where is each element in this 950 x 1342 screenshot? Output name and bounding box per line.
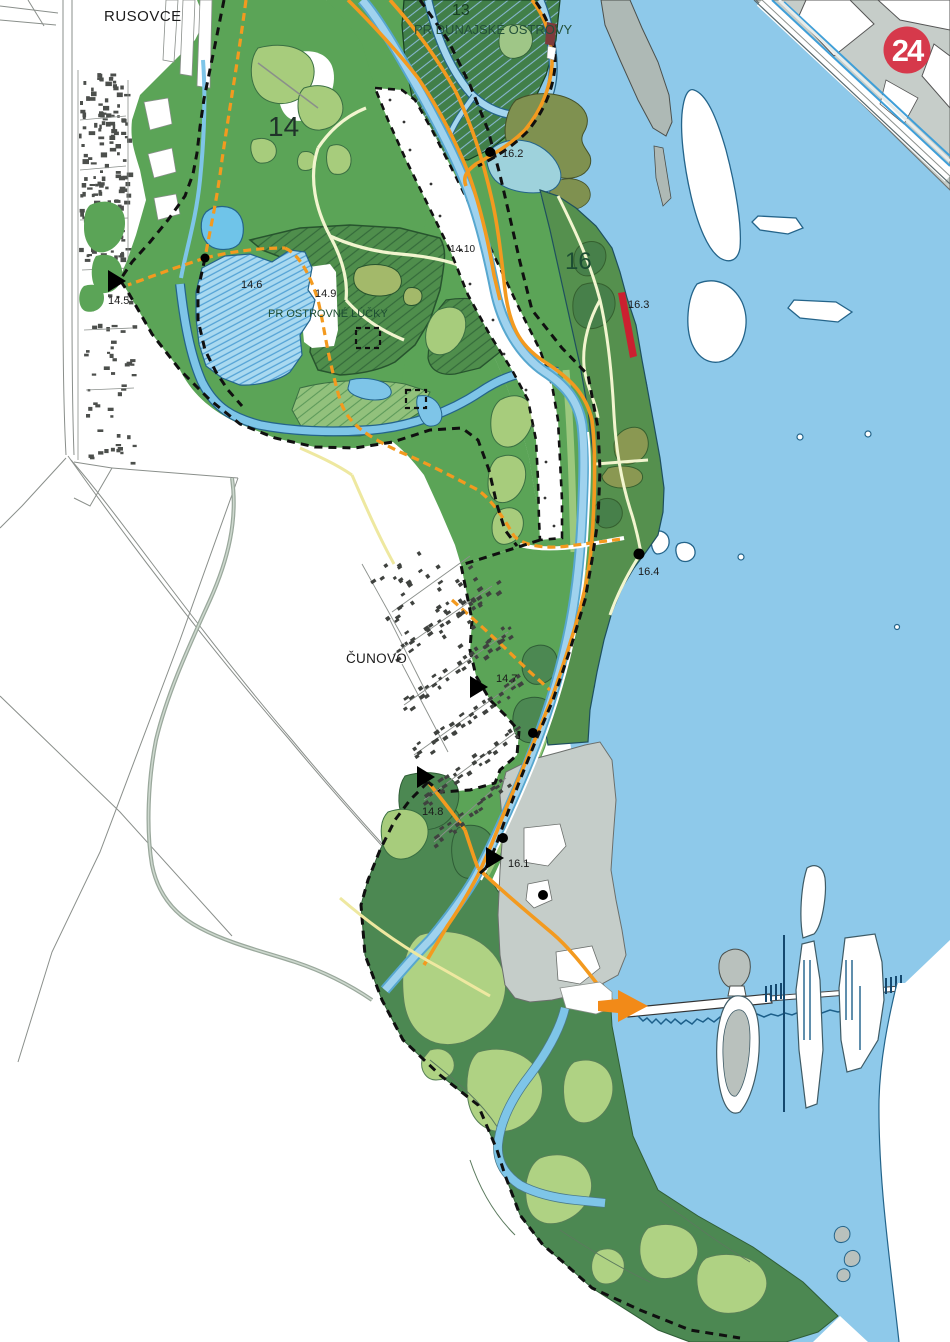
svg-text:16: 16 [565, 248, 592, 275]
svg-text:ČUNOVO: ČUNOVO [346, 651, 407, 666]
svg-text:14: 14 [268, 111, 299, 142]
svg-text:14.10: 14.10 [450, 244, 475, 255]
svg-text:16.3: 16.3 [628, 299, 649, 311]
svg-text:24: 24 [892, 33, 925, 68]
svg-text:PR OSTROVNÉ LÚČKY: PR OSTROVNÉ LÚČKY [268, 307, 388, 320]
svg-text:16.2: 16.2 [502, 148, 523, 160]
svg-text:16.4: 16.4 [638, 566, 659, 578]
svg-text:14.6: 14.6 [241, 279, 262, 291]
svg-text:16.1: 16.1 [508, 858, 529, 870]
svg-text:14.5: 14.5 [108, 295, 129, 307]
svg-text:14.8: 14.8 [422, 806, 443, 818]
svg-text:13: 13 [452, 2, 470, 19]
svg-text:RUSOVCE: RUSOVCE [104, 8, 182, 25]
svg-text:14.9: 14.9 [315, 288, 336, 300]
svg-text:PR DUNAJSKÉ OSTROVY: PR DUNAJSKÉ OSTROVY [414, 22, 573, 37]
svg-text:14.7: 14.7 [496, 673, 517, 685]
